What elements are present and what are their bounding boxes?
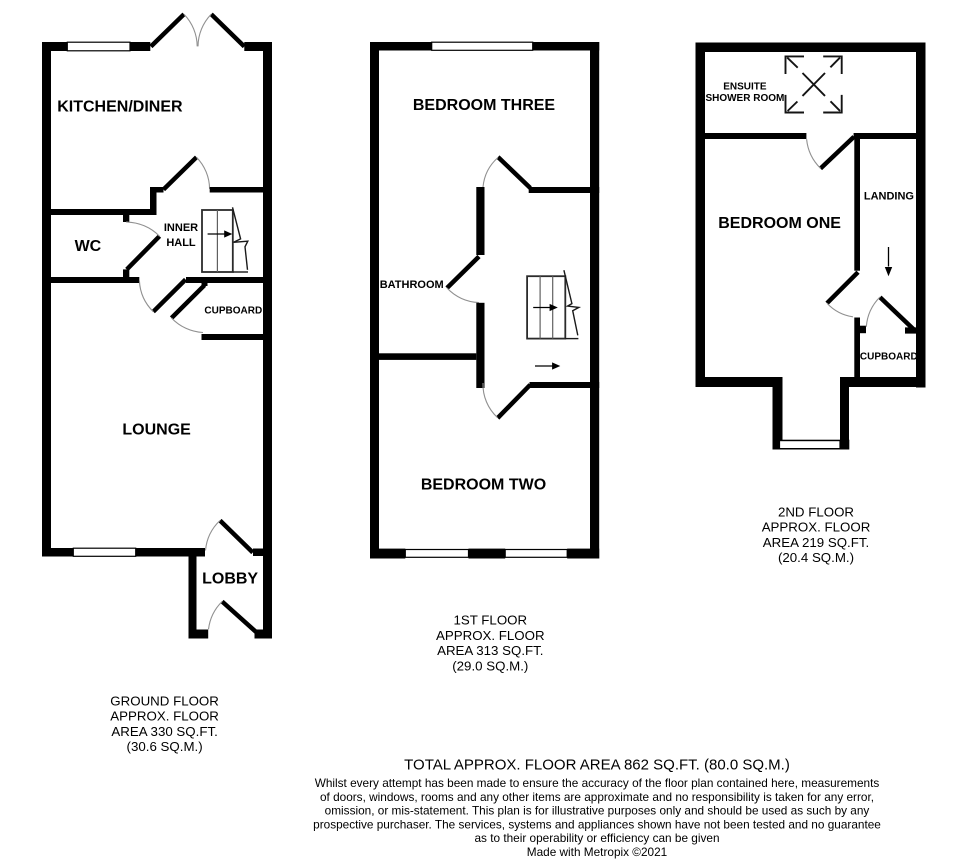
svg-text:BEDROOM TWO: BEDROOM TWO [421, 477, 546, 494]
svg-text:LOBBY: LOBBY [202, 571, 258, 588]
svg-text:BATHROOM: BATHROOM [380, 279, 444, 291]
svg-text:BEDROOM THREE: BEDROOM THREE [413, 97, 556, 114]
svg-text:(30.6 SQ.M.): (30.6 SQ.M.) [127, 739, 203, 754]
svg-text:of doors, windows, rooms and a: of doors, windows, rooms and any other i… [320, 790, 874, 804]
svg-text:AREA 219 SQ.FT.: AREA 219 SQ.FT. [763, 535, 869, 550]
svg-text:INNER: INNER [164, 222, 198, 234]
svg-text:CUPBOARD: CUPBOARD [860, 351, 918, 362]
svg-text:1ST FLOOR: 1ST FLOOR [453, 613, 527, 628]
svg-text:prospective purchaser. The ser: prospective purchaser. The services, sys… [313, 817, 881, 831]
svg-text:Made with Metropix ©2021: Made with Metropix ©2021 [527, 845, 668, 859]
svg-text:as to their operability or eff: as to their operability or efficiency ca… [474, 831, 719, 845]
svg-text:GROUND FLOOR: GROUND FLOOR [110, 693, 219, 708]
svg-text:omission, or mis-statement. Th: omission, or mis-statement. This plan is… [325, 804, 870, 818]
svg-text:SHOWER ROOM: SHOWER ROOM [705, 93, 784, 104]
svg-text:LANDING: LANDING [864, 190, 914, 202]
svg-text:APPROX. FLOOR: APPROX. FLOOR [436, 628, 545, 643]
svg-text:APPROX. FLOOR: APPROX. FLOOR [762, 520, 871, 535]
svg-text:CUPBOARD: CUPBOARD [204, 306, 262, 317]
svg-text:AREA 313 SQ.FT.: AREA 313 SQ.FT. [437, 643, 543, 658]
svg-text:APPROX. FLOOR: APPROX. FLOOR [110, 709, 219, 724]
svg-text:HALL: HALL [166, 237, 196, 249]
svg-text:TOTAL APPROX. FLOOR AREA 862 S: TOTAL APPROX. FLOOR AREA 862 SQ.FT. (80.… [404, 757, 790, 774]
svg-text:WC: WC [75, 238, 102, 255]
svg-text:KITCHEN/DINER: KITCHEN/DINER [57, 98, 183, 115]
svg-text:ENSUITE: ENSUITE [723, 81, 767, 92]
svg-text:BEDROOM ONE: BEDROOM ONE [718, 215, 841, 232]
svg-text:Whilst every attempt has been: Whilst every attempt has been made to en… [315, 776, 880, 790]
svg-text:(29.0 SQ.M.): (29.0 SQ.M.) [452, 658, 528, 673]
svg-text:(20.4 SQ.M.): (20.4 SQ.M.) [778, 550, 854, 565]
svg-text:AREA 330 SQ.FT.: AREA 330 SQ.FT. [111, 724, 217, 739]
svg-text:2ND FLOOR: 2ND FLOOR [778, 504, 854, 519]
svg-text:LOUNGE: LOUNGE [122, 421, 191, 438]
